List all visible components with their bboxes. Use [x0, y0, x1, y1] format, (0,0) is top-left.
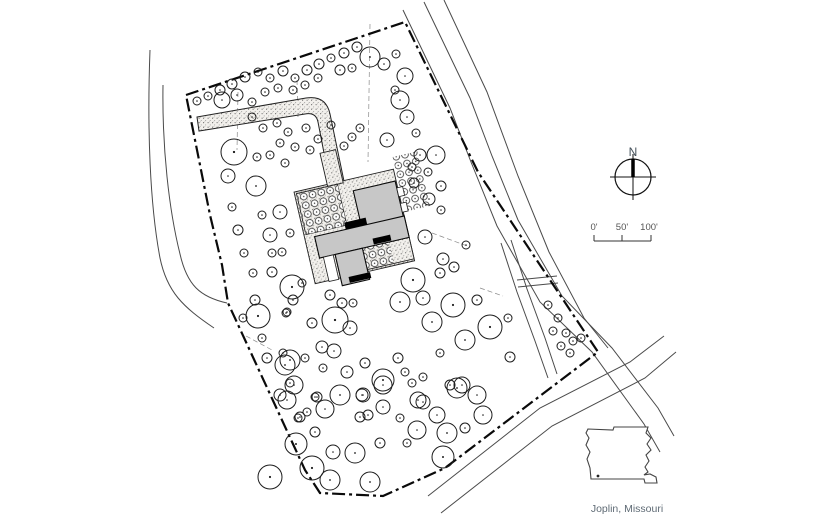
tree-center-dot: [284, 364, 286, 366]
tree-center-dot: [297, 417, 299, 419]
tree-center-dot: [346, 371, 348, 373]
tree-center-dot: [279, 394, 281, 396]
tree-center-dot: [428, 198, 430, 200]
road-edge: [149, 50, 214, 328]
tree-center-dot: [406, 442, 408, 444]
tree-center-dot: [289, 232, 291, 234]
north-arrow: [610, 154, 656, 200]
tree-center-dot: [316, 396, 318, 398]
tree-center-dot: [406, 116, 408, 118]
tree-center-dot: [399, 301, 401, 303]
tree-center-dot: [317, 138, 319, 140]
tree-center-dot: [364, 362, 366, 364]
tree-center-dot: [295, 443, 297, 445]
tree-center-dot: [289, 382, 291, 384]
tree-center-dot: [284, 162, 286, 164]
road-edge: [511, 240, 557, 374]
tree-center-dot: [352, 302, 354, 304]
tree-center-dot: [465, 244, 467, 246]
tree-center-dot: [255, 185, 257, 187]
north-pointer: [631, 159, 635, 177]
tree-center-dot: [231, 83, 233, 85]
tree-center-dot: [382, 384, 384, 386]
tree-center-dot: [359, 416, 361, 418]
tree-center-dot: [196, 100, 198, 102]
tree-center-dot: [330, 124, 332, 126]
tree-center-dot: [476, 299, 478, 301]
tree-center-dot: [456, 387, 458, 389]
tree-center-dot: [449, 384, 451, 386]
tree-center-dot: [269, 77, 271, 79]
tree-center-dot: [439, 352, 441, 354]
tree-center-dot: [334, 319, 336, 321]
tree-center-dot: [476, 394, 478, 396]
site-plan-page: N 0' 50' 100' Joplin, Missouri: [0, 0, 818, 530]
leader-line: [480, 288, 503, 296]
tree-center-dot: [314, 431, 316, 433]
joplin-location-dot: [597, 475, 600, 478]
tree-center-dot: [261, 337, 263, 339]
tree-center-dot: [424, 236, 426, 238]
tree-center-dot: [292, 89, 294, 91]
tree-center-dot: [221, 99, 223, 101]
tree-center-dot: [281, 251, 283, 253]
entry-walk: [320, 150, 343, 187]
scale-bar: [594, 235, 651, 241]
leader-line: [432, 233, 470, 247]
tree-center-dot: [547, 304, 549, 306]
tree-center-dot: [422, 297, 424, 299]
tree-center-dot: [233, 151, 235, 153]
tree-center-dot: [324, 408, 326, 410]
tree-center-dot: [436, 414, 438, 416]
tree-center-dot: [257, 315, 259, 317]
tree-center-dot: [489, 326, 491, 328]
tree-center-dot: [282, 70, 284, 72]
tree-center-dot: [397, 357, 399, 359]
tree-center-dot: [321, 346, 323, 348]
road-edge: [424, 2, 674, 436]
tree-center-dot: [359, 127, 361, 129]
tree-center-dot: [367, 414, 369, 416]
tree-center-dot: [453, 266, 455, 268]
tree-center-dot: [266, 357, 268, 359]
tree-center-dot: [439, 272, 441, 274]
tree-center-dot: [269, 154, 271, 156]
tree-center-dot: [341, 302, 343, 304]
tree-center-dot: [227, 175, 229, 177]
tree-center-dot: [287, 131, 289, 133]
tree-center-dot: [231, 206, 233, 208]
road-edge: [501, 243, 548, 378]
tree-center-dot: [262, 127, 264, 129]
driveway-layer: [197, 98, 345, 189]
north-label: N: [629, 145, 638, 159]
tree-center-dot: [294, 77, 296, 79]
tree-center-dot: [417, 399, 419, 401]
tree-center-dot: [440, 185, 442, 187]
tree-center-dot: [422, 401, 424, 403]
tree-center-dot: [435, 154, 437, 156]
tree-center-dot: [256, 156, 258, 158]
tree-center-dot: [269, 476, 271, 478]
tree-center-dot: [415, 132, 417, 134]
tree-center-dot: [464, 427, 466, 429]
tree-center-dot: [382, 379, 384, 381]
tree-center-dot: [416, 429, 418, 431]
tree-center-dot: [251, 101, 253, 103]
tree-center-dot: [560, 345, 562, 347]
tree-center-dot: [314, 396, 316, 398]
tree-center-dot: [339, 69, 341, 71]
tree-center-dot: [569, 352, 571, 354]
tree-center-dot: [565, 332, 567, 334]
tree-center-dot: [399, 99, 401, 101]
tree-center-dot: [369, 481, 371, 483]
tree-center-dot: [461, 384, 463, 386]
tree-center-dot: [318, 63, 320, 65]
tree-center-dot: [271, 271, 273, 273]
tree-center-dot: [243, 252, 245, 254]
tree-center-dot: [294, 146, 296, 148]
site-plan-canvas: N 0' 50' 100' Joplin, Missouri: [0, 0, 818, 530]
tree-center-dot: [354, 452, 356, 454]
tree-center-dot: [386, 139, 388, 141]
tree-center-dot: [252, 272, 254, 274]
scale-label-100: 100': [640, 222, 658, 233]
tree-center-dot: [311, 322, 313, 324]
tree-center-dot: [412, 279, 414, 281]
tree-center-dot: [251, 116, 253, 118]
tree-center-dot: [299, 416, 301, 418]
location-label: Joplin, Missouri: [591, 503, 663, 515]
tree-center-dot: [286, 399, 288, 401]
tree-center-dot: [291, 286, 293, 288]
tree-center-dot: [317, 77, 319, 79]
tree-center-dot: [464, 339, 466, 341]
tree-center-dot: [305, 127, 307, 129]
tree-center-dot: [276, 122, 278, 124]
tree-center-dot: [236, 94, 238, 96]
tree-center-dot: [306, 69, 308, 71]
tree-center-dot: [356, 46, 358, 48]
tree-center-dot: [404, 75, 406, 77]
tree-center-dot: [351, 67, 353, 69]
tree-center-dot: [330, 57, 332, 59]
tree-center-dot: [306, 411, 308, 413]
road-edge: [444, 0, 608, 348]
tree-center-dot: [271, 252, 273, 254]
tree-center-dot: [413, 182, 415, 184]
tree-center-dot: [304, 357, 306, 359]
tree-center-dot: [446, 432, 448, 434]
tree-center-dot: [379, 442, 381, 444]
leader-line: [368, 24, 370, 162]
tree-center-dot: [343, 145, 345, 147]
tree-center-dot: [557, 317, 559, 319]
tree-center-dot: [242, 317, 244, 319]
tree-center-dot: [207, 95, 209, 97]
tree-center-dot: [261, 214, 263, 216]
tree-center-dot: [482, 414, 484, 416]
tree-center-dot: [269, 234, 271, 236]
tree-center-dot: [362, 394, 364, 396]
tree-center-dot: [399, 417, 401, 419]
tree-center-dot: [219, 89, 221, 91]
tree-center-dot: [509, 356, 511, 358]
tree-center-dot: [382, 406, 384, 408]
tree-center-dot: [333, 350, 335, 352]
tree-center-dot: [411, 166, 413, 168]
missouri-outline: [586, 427, 657, 483]
tree-center-dot: [431, 321, 433, 323]
tree-center-dot: [383, 63, 385, 65]
tree-center-dot: [404, 371, 406, 373]
tree-center-dot: [237, 229, 239, 231]
tree-center-dot: [329, 479, 331, 481]
tree-center-dot: [422, 376, 424, 378]
tree-center-dot: [322, 367, 324, 369]
tree-center-dot: [552, 330, 554, 332]
tree-center-dot: [277, 87, 279, 89]
tree-center-dot: [343, 52, 345, 54]
tree-center-dot: [264, 91, 266, 93]
tree-center-dot: [349, 327, 351, 329]
tree-center-dot: [332, 451, 334, 453]
tree-center-dot: [442, 456, 444, 458]
tree-center-dot: [279, 142, 281, 144]
tree-center-dot: [507, 317, 509, 319]
tree-center-dot: [289, 359, 291, 361]
tree-center-dot: [442, 258, 444, 260]
tree-center-dot: [440, 209, 442, 211]
tree-center-dot: [339, 394, 341, 396]
scale-label-50: 50': [616, 222, 629, 233]
tree-center-dot: [304, 84, 306, 86]
scale-label-0: 0': [590, 222, 597, 233]
tree-center-dot: [572, 340, 574, 342]
gravel-driveway: [197, 98, 345, 189]
tree-center-dot: [311, 467, 313, 469]
tree-center-dot: [329, 294, 331, 296]
tree-center-dot: [279, 211, 281, 213]
tree-center-dot: [427, 171, 429, 173]
tree-center-dot: [395, 53, 397, 55]
tree-center-dot: [411, 382, 413, 384]
tree-center-dot: [351, 136, 353, 138]
tree-center-dot: [369, 56, 371, 58]
tree-center-dot: [419, 154, 421, 156]
tree-center-dot: [254, 299, 256, 301]
tree-center-dot: [394, 89, 396, 91]
tree-center-dot: [244, 76, 246, 78]
state-locator-map: [586, 427, 657, 483]
tree-center-dot: [257, 71, 259, 73]
tree-center-dot: [580, 337, 582, 339]
tree-center-dot: [285, 312, 287, 314]
tree-center-dot: [301, 282, 303, 284]
tree-center-dot: [452, 304, 454, 306]
tree-center-dot: [309, 149, 311, 151]
